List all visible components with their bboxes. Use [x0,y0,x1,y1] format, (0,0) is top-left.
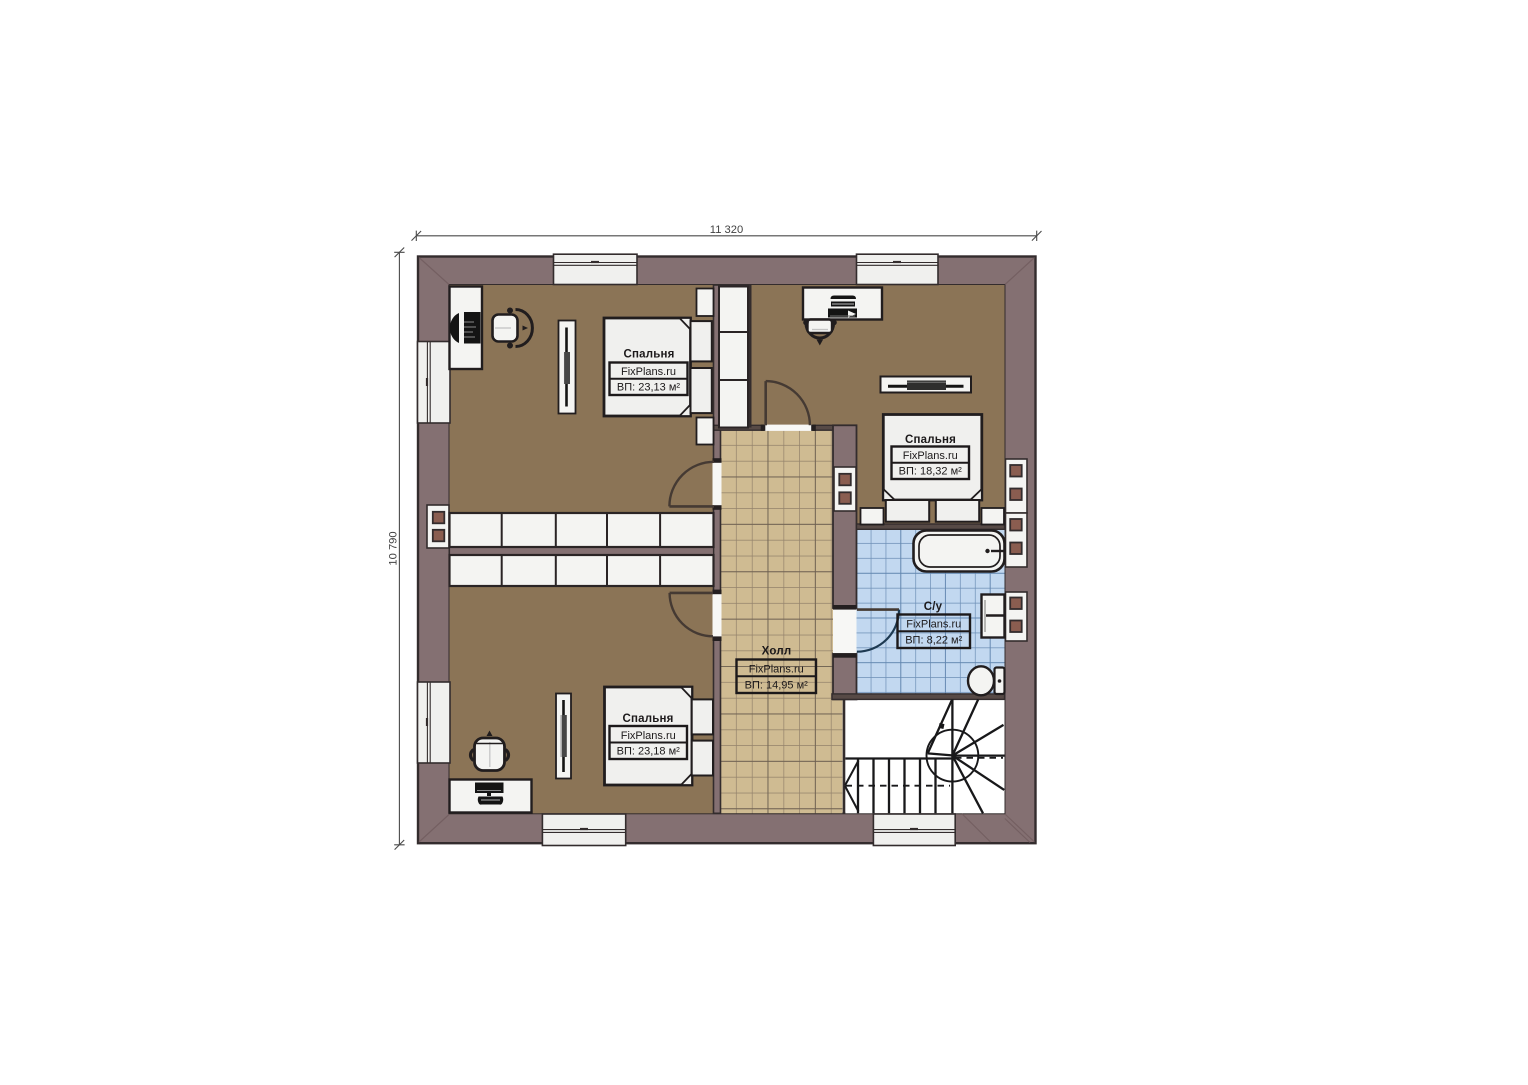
svg-text:ВП: 18,32 м²: ВП: 18,32 м² [899,466,963,478]
svg-text:ВП: 23,18 м²: ВП: 23,18 м² [617,746,681,758]
svg-text:FixPlans.ru: FixPlans.ru [903,450,958,462]
svg-text:С/у: С/у [924,601,943,613]
svg-text:Спальня: Спальня [905,434,956,446]
svg-text:Холл: Холл [762,646,792,658]
svg-text:FixPlans.ru: FixPlans.ru [749,664,804,676]
svg-text:FixPlans.ru: FixPlans.ru [621,366,676,378]
svg-text:Спальня: Спальня [622,713,673,725]
svg-text:ВП: 14,95 м²: ВП: 14,95 м² [745,680,809,692]
svg-text:ВП: 8,22 м²: ВП: 8,22 м² [905,635,962,647]
svg-text:FixPlans.ru: FixPlans.ru [906,619,961,631]
svg-text:ВП: 23,13 м²: ВП: 23,13 м² [617,382,681,394]
svg-text:10 790: 10 790 [387,531,399,565]
svg-text:FixPlans.ru: FixPlans.ru [621,730,676,742]
svg-text:Спальня: Спальня [623,349,674,361]
svg-text:11 320: 11 320 [710,224,743,236]
